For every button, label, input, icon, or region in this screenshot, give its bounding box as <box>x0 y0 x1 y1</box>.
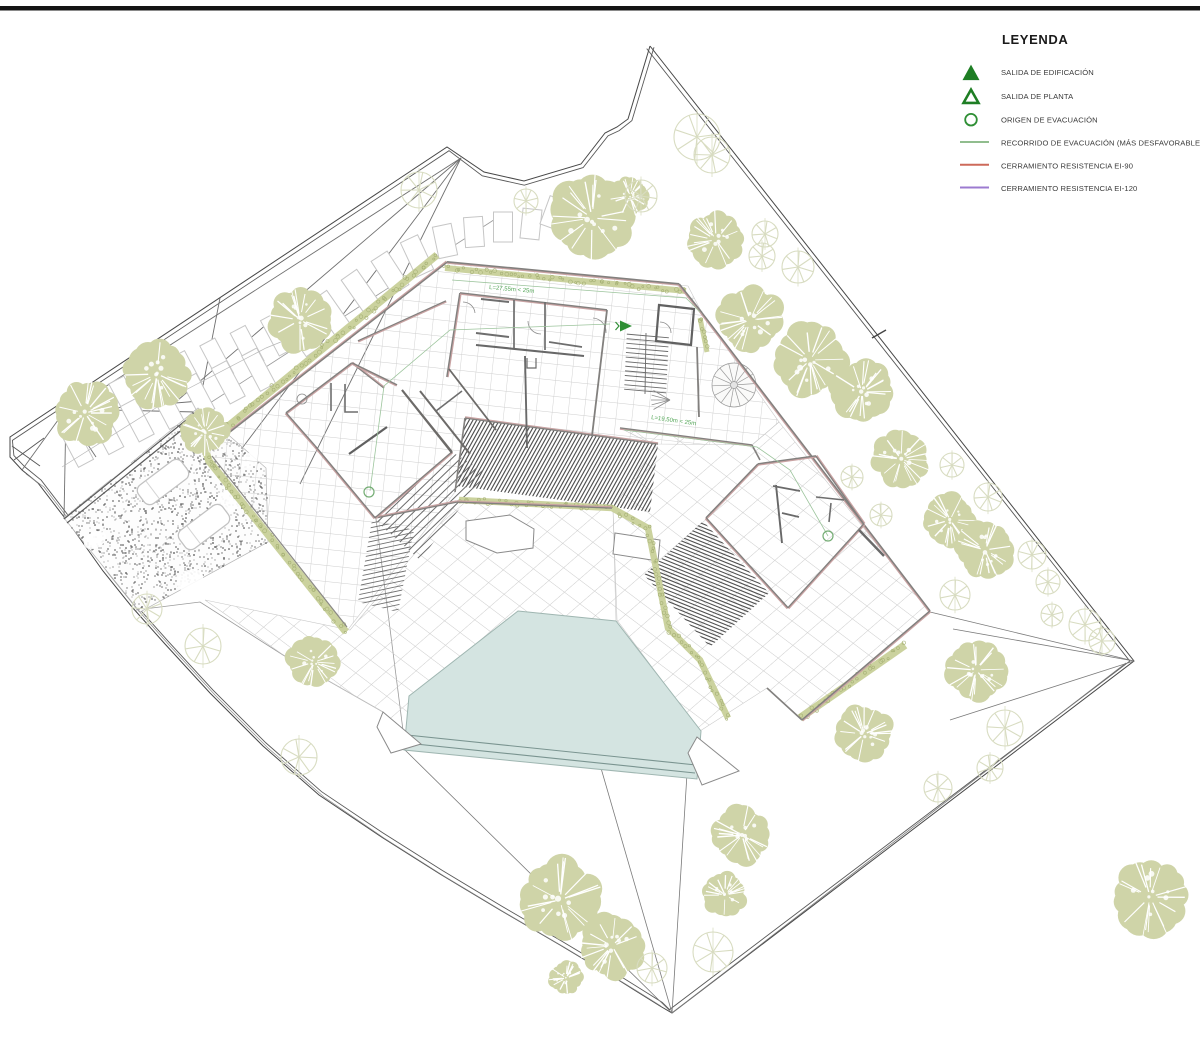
svg-text:RECORRIDO DE EVACUACIÓN (MÁS D: RECORRIDO DE EVACUACIÓN (MÁS DESFAVORABL… <box>1001 139 1200 148</box>
svg-text:SALIDA DE EDIFICACIÓN: SALIDA DE EDIFICACIÓN <box>1001 68 1094 77</box>
svg-text:CERRAMIENTO RESISTENCIA EI-90: CERRAMIENTO RESISTENCIA EI-90 <box>1001 161 1133 170</box>
svg-text:ORIGEN DE EVACUACIÓN: ORIGEN DE EVACUACIÓN <box>1001 116 1098 125</box>
svg-text:SALIDA DE PLANTA: SALIDA DE PLANTA <box>1001 92 1074 101</box>
svg-text:CERRAMIENTO RESISTENCIA EI-120: CERRAMIENTO RESISTENCIA EI-120 <box>1001 184 1137 193</box>
svg-text:LEYENDA: LEYENDA <box>1002 32 1068 47</box>
